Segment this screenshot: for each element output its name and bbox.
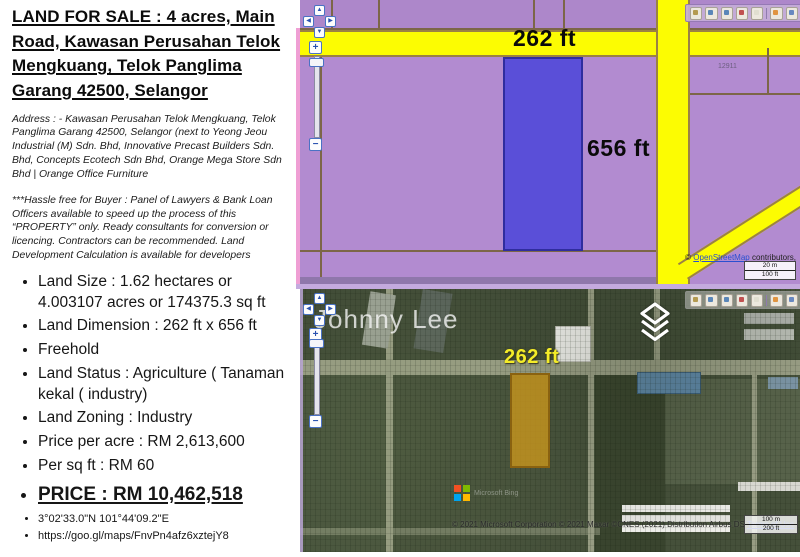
fact-land-zoning: Land Zoning : Industry <box>38 408 292 429</box>
measure-icon[interactable] <box>770 7 782 20</box>
scale-imperial: 100 ft <box>745 271 795 279</box>
microsoft-logo-icon <box>454 485 470 501</box>
pan-right-button[interactable]: ▶ <box>325 16 336 27</box>
scale-bar: 20 m 100 ft <box>744 261 796 280</box>
zoom-slider-track[interactable] <box>314 343 320 415</box>
pan-down-button[interactable]: ▼ <box>314 315 325 326</box>
map-toolbar <box>685 4 800 22</box>
depth-dimension-label: 656 ft <box>587 135 650 162</box>
zoom-window-icon[interactable] <box>705 294 717 307</box>
zoom-slider-handle[interactable] <box>309 339 324 348</box>
toolbar-separator <box>766 8 767 19</box>
measure-icon[interactable] <box>770 294 782 307</box>
subject-parcel-highlight-satellite[interactable] <box>510 373 550 468</box>
flyer-page: LAND FOR SALE : 4 acres, Main Road, Kawa… <box>0 0 800 557</box>
fact-price-per-acre: Price per acre : RM 2,613,600 <box>38 432 292 453</box>
fact-list: Land Size : 1.62 hectares or 4.003107 ac… <box>12 272 292 544</box>
toolbar-separator <box>766 295 767 306</box>
maps-short-link[interactable]: https://goo.gl/maps/FnvPn4afz6xztejY8 <box>38 528 292 545</box>
frontage-dimension-label: 262 ft <box>513 25 576 52</box>
bing-maps-logo: Microsoft Bing <box>454 485 518 501</box>
zoom-slider-track[interactable] <box>314 56 320 138</box>
gps-coordinates: 3°02'33.0"N 101°44'09.2"E <box>38 511 292 528</box>
zoom-window-icon[interactable] <box>705 7 717 20</box>
address-text: Address : - Kawasan Perusahan Telok Meng… <box>12 113 292 182</box>
fact-land-size: Land Size : 1.62 hectares or 4.003107 ac… <box>38 272 292 314</box>
pan-hand-icon[interactable] <box>690 294 702 307</box>
side-road <box>656 0 690 284</box>
print-icon[interactable] <box>786 294 798 307</box>
pan-right-button[interactable]: ▶ <box>325 304 336 315</box>
scale-bar: 100 m 200 ft <box>744 515 798 534</box>
fact-tenure: Freehold <box>38 340 292 361</box>
imagery-attribution: © 2021 Microsoft Corporation © 2021 Maxa… <box>452 520 794 529</box>
fact-land-status: Land Status : Agriculture ( Tanaman keka… <box>38 364 292 406</box>
parcel-strip <box>300 277 656 284</box>
locate-icon[interactable] <box>736 294 748 307</box>
scale-metric: 20 m <box>745 262 795 271</box>
pan-left-button[interactable]: ◀ <box>303 304 314 315</box>
scale-imperial: 200 ft <box>745 525 797 533</box>
openstreetmap-link[interactable]: OpenStreetMap <box>693 253 749 262</box>
zoom-in-button[interactable]: + <box>309 41 322 54</box>
pan-up-button[interactable]: ▲ <box>314 5 325 16</box>
clear-icon[interactable] <box>751 294 763 307</box>
bing-logo-text: Microsoft Bing <box>474 490 518 497</box>
scale-metric: 100 m <box>745 516 797 525</box>
map-toolbar <box>685 291 800 309</box>
frontage-dimension-label-satellite: 262 ft <box>504 346 559 369</box>
clear-icon[interactable] <box>751 7 763 20</box>
buyer-note-text: ***Hassle free for Buyer : Panel of Lawy… <box>12 194 292 263</box>
pan-hand-icon[interactable] <box>690 7 702 20</box>
subject-parcel-highlight[interactable] <box>503 57 583 251</box>
locate-icon[interactable] <box>736 7 748 20</box>
property-portal-logo-icon <box>637 302 673 342</box>
parcel-line <box>690 93 800 95</box>
parcel-line <box>300 250 656 252</box>
listing-title: LAND FOR SALE : 4 acres, Main Road, Kawa… <box>12 5 292 104</box>
print-icon[interactable] <box>786 7 798 20</box>
zoom-out-button[interactable]: − <box>309 138 322 151</box>
find-icon[interactable] <box>721 294 733 307</box>
info-panel: LAND FOR SALE : 4 acres, Main Road, Kawa… <box>0 0 296 557</box>
parcel-line <box>767 48 769 94</box>
map-edge-strip <box>300 289 303 552</box>
pan-left-button[interactable]: ◀ <box>303 16 314 27</box>
fact-land-dimension: Land Dimension : 262 ft x 656 ft <box>38 316 292 337</box>
pan-up-button[interactable]: ▲ <box>314 293 325 304</box>
cadastral-map[interactable]: 12911 262 ft 656 ft ▲ ◀ ▶ ▼ + − © OpenSt… <box>300 0 800 284</box>
total-price: PRICE : RM 10,462,518 <box>38 482 292 507</box>
fact-price-per-sqft: Per sq ft : RM 60 <box>38 456 292 477</box>
parcel-number-label: 12911 <box>718 63 737 70</box>
satellite-map[interactable]: 262 ft Johnny Lee ▲ ◀ ▶ ▼ + − <box>300 289 800 552</box>
parcel-line <box>378 0 380 30</box>
pan-down-button[interactable]: ▼ <box>314 27 325 38</box>
zoom-out-button[interactable]: − <box>309 415 322 428</box>
zoom-slider-handle[interactable] <box>309 58 324 67</box>
find-icon[interactable] <box>721 7 733 20</box>
